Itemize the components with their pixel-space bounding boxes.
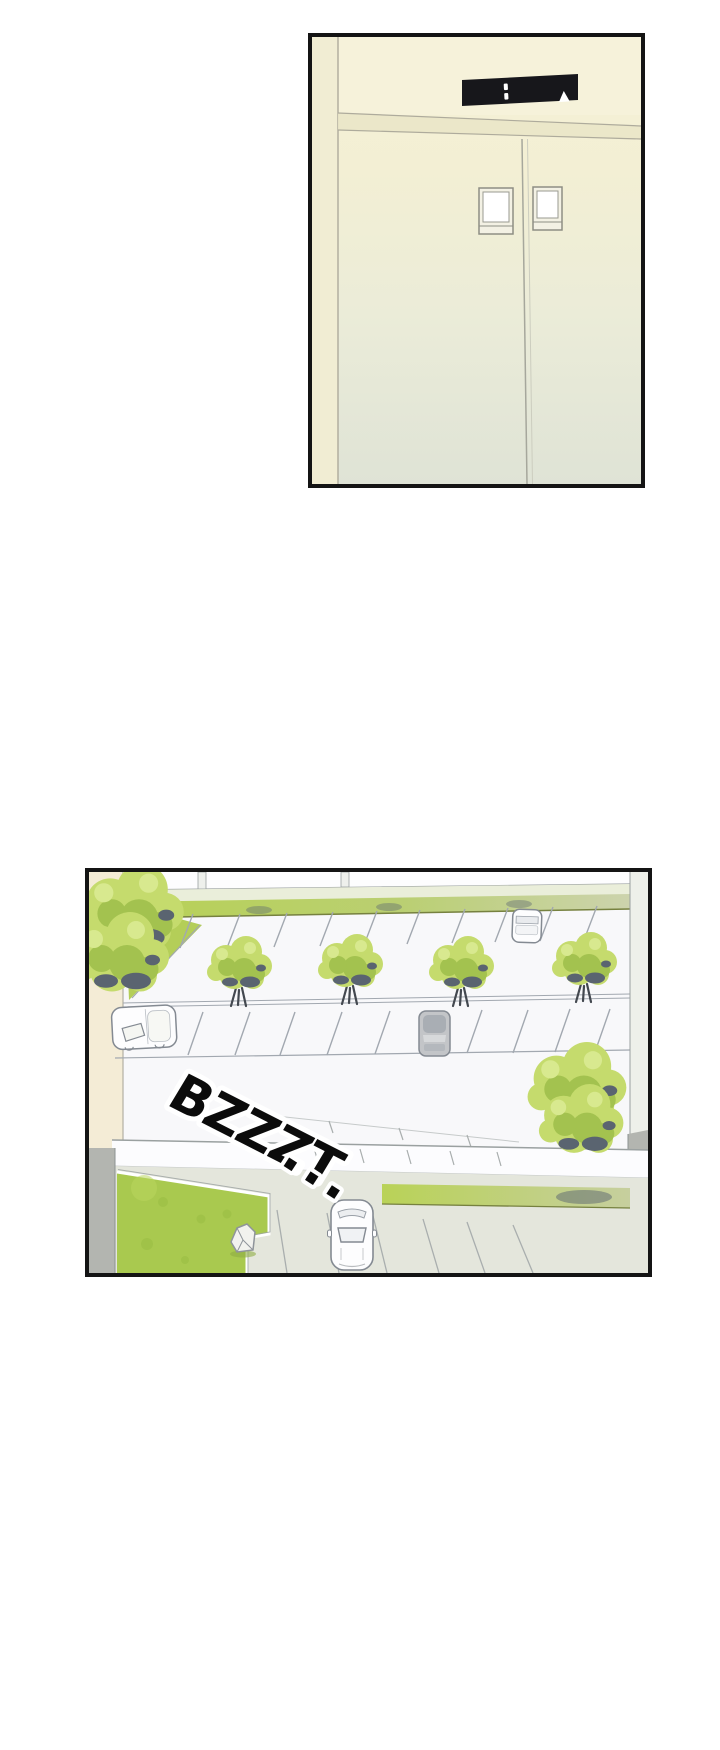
panel-elevator: ▲ bbox=[308, 33, 645, 488]
up-arrow-icon: ▲ bbox=[558, 88, 570, 105]
left-wall-lower bbox=[89, 1148, 115, 1273]
parked-van bbox=[111, 1005, 177, 1051]
parked-car-gray bbox=[419, 1011, 450, 1056]
parking-scene: BZZZT ... bbox=[89, 872, 648, 1273]
elevator-scene: ▲ bbox=[312, 37, 641, 484]
door-window-right bbox=[533, 187, 562, 230]
right-pillar-upper bbox=[630, 872, 648, 1136]
lower-hedge-strip bbox=[382, 1184, 630, 1208]
fence-post bbox=[198, 872, 206, 889]
panel-parking: BZZZT ... bbox=[85, 868, 652, 1277]
comic-page: { "page": {"width": 720, "height": 1750,… bbox=[0, 0, 720, 1750]
fence-post bbox=[341, 872, 349, 887]
door-window-left bbox=[479, 188, 513, 234]
wall-left-sliver bbox=[312, 37, 338, 484]
parked-car-top-right bbox=[512, 909, 542, 943]
